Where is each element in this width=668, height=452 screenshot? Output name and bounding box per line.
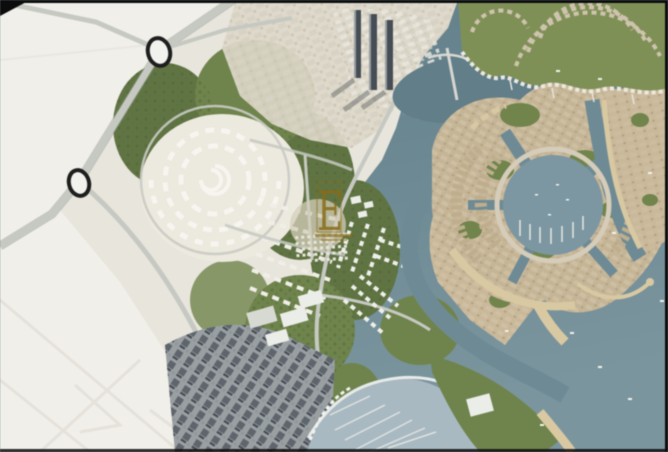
watermark-caption-illegible-2 [321, 239, 347, 241]
watermark-monogram: E [317, 180, 343, 243]
marina-basin [503, 155, 603, 255]
watermark-caption-illegible [315, 234, 353, 237]
masterplan-aerial-image: E [0, 0, 668, 452]
